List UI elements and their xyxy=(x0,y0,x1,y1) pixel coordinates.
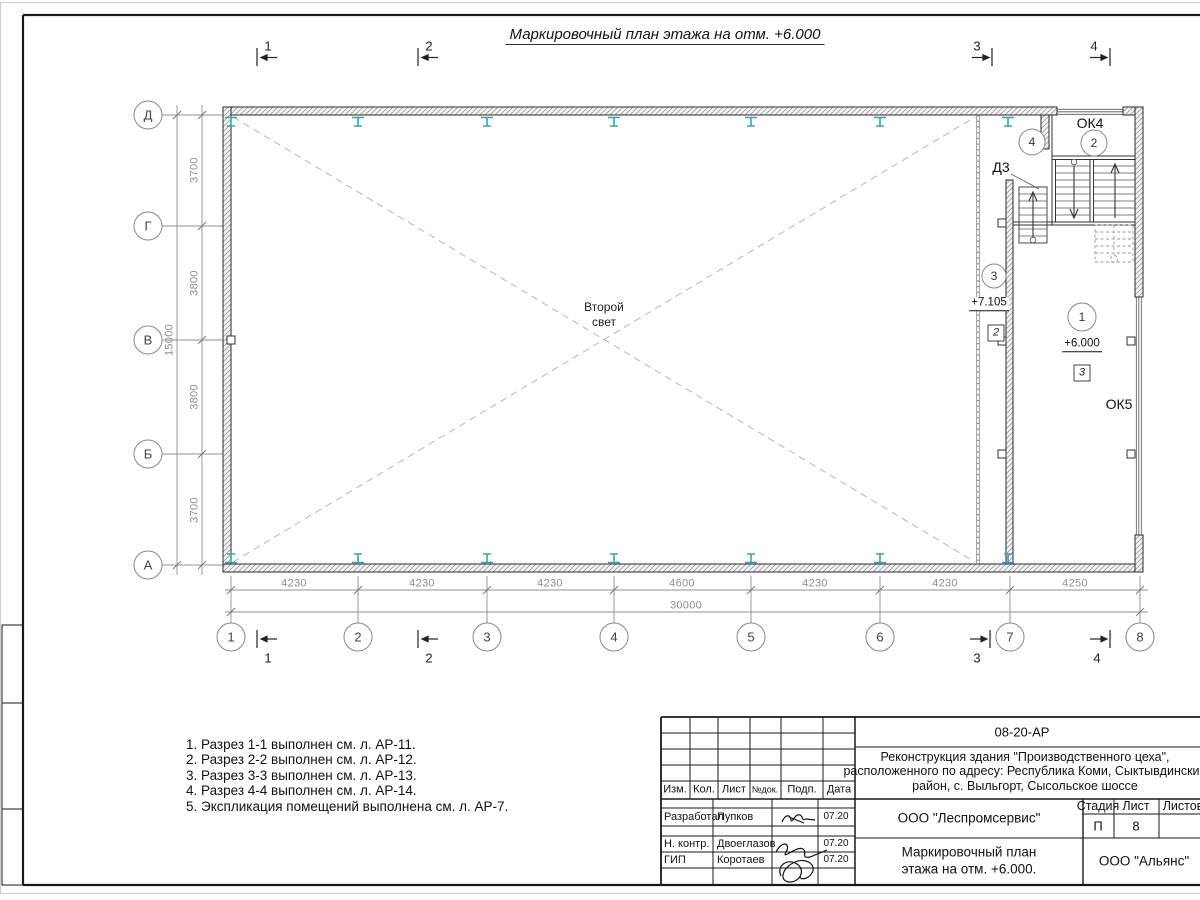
titleblock-project-line3: район, с. Выльгорт, Сысольское шоссе xyxy=(912,780,1138,793)
titleblock-col-data: Дата xyxy=(827,785,851,796)
section-top-4: 4 xyxy=(1090,40,1097,53)
titleblock-col-ndok: №док. xyxy=(752,786,778,795)
second-light-diagonals xyxy=(233,117,975,562)
section-cut-markers xyxy=(257,48,1110,648)
room-mark-4: 4 xyxy=(1029,136,1036,148)
dim-bottom-1: 4230 xyxy=(281,579,307,590)
stair-flight-hidden xyxy=(1095,225,1133,263)
section-bottom-2: 2 xyxy=(425,652,432,665)
titleblock-col-list: Лист xyxy=(722,785,746,796)
room-mark-3: 3 xyxy=(991,270,998,282)
titleblock-date-developed: 07.20 xyxy=(823,812,848,822)
notes-block: 1. Разрез 1-1 выполнен см. л. АР-11. 2. … xyxy=(186,737,508,814)
dim-left-total: 15000 xyxy=(165,324,176,356)
second-light-label-line1: Второй xyxy=(584,301,624,313)
drawing-title: Маркировочный план этажа на отм. +6.000 xyxy=(506,27,825,45)
titleblock-doc-title-line1: Маркировочный план xyxy=(902,845,1037,859)
steel-column-icons xyxy=(225,118,1014,563)
note-line-5: 5. Экспликация помещений выполнена см. л… xyxy=(186,799,508,814)
axis-col-4: 4 xyxy=(610,631,617,644)
dim-bottom-4: 4600 xyxy=(669,579,695,590)
titleblock-role-developed: Разработал xyxy=(664,812,724,823)
dim-bottom-7: 4250 xyxy=(1062,579,1088,590)
axis-row-v: В xyxy=(144,334,153,347)
titleblock-name-developed: Пупков xyxy=(717,812,753,823)
elevation-mark-upper: +7.105 xyxy=(969,297,1009,311)
titleblock-sheet-value: 8 xyxy=(1132,820,1139,833)
titleblock-project-line1: Реконструкция здания "Производственного … xyxy=(881,751,1170,764)
titleblock-col-izm: Изм. xyxy=(663,785,687,796)
drawing-sheet: Маркировочный план этажа на отм. +6.000 … xyxy=(0,0,1200,900)
axis-col-7: 7 xyxy=(1006,631,1013,644)
titleblock-stage-label: Стадия xyxy=(1077,800,1120,813)
second-light-label-line2: свет xyxy=(592,316,616,328)
axis-row-g: Г xyxy=(144,220,151,233)
window-ok5-label: ОК5 xyxy=(1106,397,1133,411)
axis-row-a: А xyxy=(144,559,153,572)
note-line-2: 2. Разрез 2-2 выполнен см. л. АР-12. xyxy=(186,752,508,767)
window-ok5 xyxy=(1136,297,1141,535)
room-mark-1: 1 xyxy=(1079,311,1086,323)
dim-left-1: 3700 xyxy=(190,157,201,183)
titleblock-doc-code: 08-20-АР xyxy=(995,726,1050,739)
node-mark-2: 2 xyxy=(988,325,1005,342)
signature-scribbles xyxy=(776,815,827,882)
dim-bottom-2: 4230 xyxy=(409,579,435,590)
titleblock-sheets-label: Листов xyxy=(1163,800,1200,813)
titleblock-name-gip: Коротаев xyxy=(717,855,765,866)
titleblock-stage-value: П xyxy=(1093,820,1102,833)
axis-col-8: 8 xyxy=(1136,631,1143,644)
axis-row-d: Д xyxy=(144,109,153,122)
section-bottom-4: 4 xyxy=(1093,652,1100,665)
dim-bottom-5: 4230 xyxy=(802,579,828,590)
dimension-lines xyxy=(162,105,1148,623)
elevation-mark-main: +6.000 xyxy=(1062,338,1102,352)
titleblock-doc-title-line2: этажа на отм. +6.000. xyxy=(902,862,1037,876)
node-mark-3: 3 xyxy=(1074,365,1091,382)
axis-col-1: 1 xyxy=(227,631,234,644)
note-line-1: 1. Разрез 1-1 выполнен см. л. АР-11. xyxy=(186,737,508,752)
titleblock-project-line2: расположенного по адресу: Республика Ком… xyxy=(843,765,1200,778)
glazed-partition xyxy=(977,115,980,564)
section-top-2: 2 xyxy=(425,40,432,53)
axis-row-b: Б xyxy=(144,448,153,461)
dim-left-3: 3800 xyxy=(190,384,201,410)
section-bottom-3: 3 xyxy=(973,652,980,665)
axis-col-2: 2 xyxy=(354,631,361,644)
axis-col-3: 3 xyxy=(483,631,490,644)
dim-left-2: 3800 xyxy=(190,270,201,296)
titleblock-role-ncontrol: Н. контр. xyxy=(664,839,709,850)
note-line-3: 3. Разрез 3-3 выполнен см. л. АР-13. xyxy=(186,768,508,783)
titleblock-org-designer: ООО "Леспромсервис" xyxy=(898,811,1041,825)
window-ok4 xyxy=(1057,109,1123,114)
titleblock-org-client: ООО "Альянс" xyxy=(1099,854,1189,868)
dim-bottom-3: 4230 xyxy=(537,579,563,590)
titleblock-sheet-label: Лист xyxy=(1122,800,1149,813)
stair-flights xyxy=(1019,159,1135,243)
section-bottom-1: 1 xyxy=(264,652,271,665)
axis-col-6: 6 xyxy=(876,631,883,644)
note-line-4: 4. Разрез 4-4 выполнен см. л. АР-14. xyxy=(186,783,508,798)
dim-bottom-6: 4230 xyxy=(932,579,958,590)
dim-bottom-total: 30000 xyxy=(667,601,705,612)
axis-col-5: 5 xyxy=(747,631,754,644)
titleblock-col-kol: Кол. xyxy=(693,785,715,796)
titleblock-role-gip: ГИП xyxy=(664,855,686,866)
section-top-1: 1 xyxy=(264,40,271,53)
door-d3-label: Д3 xyxy=(991,160,1010,174)
titleblock-name-ncontrol: Двоеглазов xyxy=(717,839,775,850)
room-mark-2: 2 xyxy=(1091,137,1098,149)
section-top-3: 3 xyxy=(973,40,980,53)
titleblock-date-ncontrol: 07.20 xyxy=(823,839,848,849)
dim-left-4: 3700 xyxy=(190,497,201,523)
titleblock-col-podp: Подп. xyxy=(787,785,816,796)
titleblock-date-gip: 07.20 xyxy=(823,855,848,865)
window-ok4-label: ОК4 xyxy=(1077,116,1104,130)
